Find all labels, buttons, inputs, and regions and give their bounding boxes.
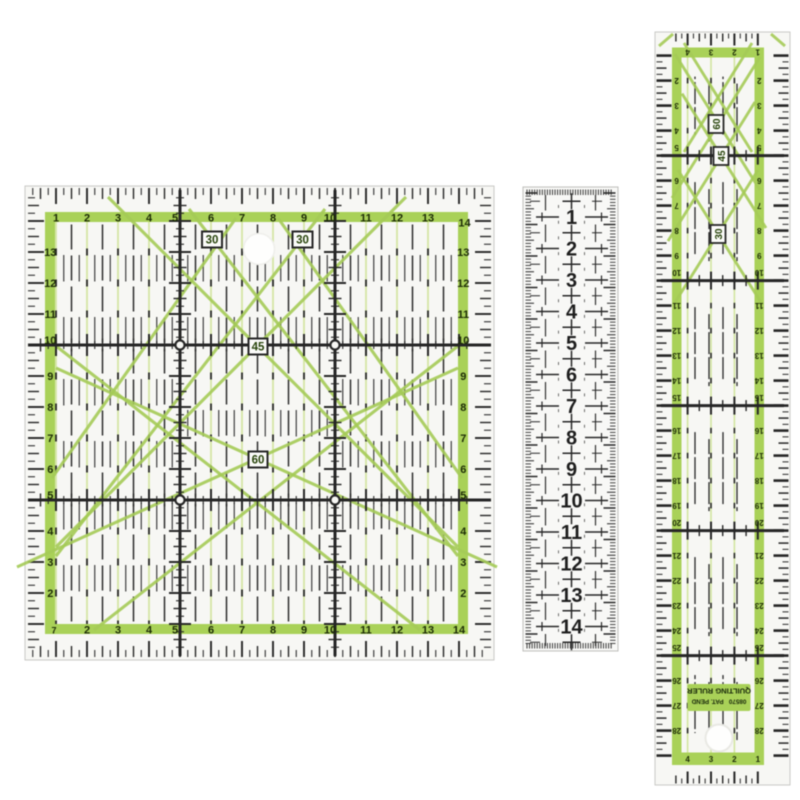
svg-text:60: 60 bbox=[252, 455, 265, 467]
svg-text:10: 10 bbox=[324, 213, 336, 225]
svg-text:12: 12 bbox=[457, 278, 469, 290]
svg-text:22: 22 bbox=[754, 576, 763, 585]
svg-text:19: 19 bbox=[672, 501, 681, 510]
svg-text:12: 12 bbox=[672, 326, 681, 335]
svg-text:21: 21 bbox=[672, 551, 681, 560]
svg-text:2: 2 bbox=[84, 213, 90, 225]
svg-text:1: 1 bbox=[755, 48, 760, 57]
svg-text:10: 10 bbox=[754, 268, 763, 277]
svg-text:6: 6 bbox=[47, 464, 53, 476]
svg-text:13: 13 bbox=[754, 351, 763, 360]
svg-text:9: 9 bbox=[301, 624, 307, 636]
svg-text:3: 3 bbox=[47, 557, 53, 569]
svg-text:11: 11 bbox=[755, 301, 764, 310]
svg-text:19: 19 bbox=[754, 501, 763, 510]
svg-text:4: 4 bbox=[146, 624, 153, 636]
svg-text:5: 5 bbox=[47, 490, 53, 502]
svg-text:10: 10 bbox=[324, 624, 336, 636]
svg-text:28: 28 bbox=[754, 726, 763, 735]
svg-text:12: 12 bbox=[391, 624, 403, 636]
svg-text:6: 6 bbox=[757, 176, 762, 185]
svg-text:13: 13 bbox=[422, 624, 434, 636]
svg-text:10: 10 bbox=[672, 268, 681, 277]
svg-text:1: 1 bbox=[756, 755, 761, 764]
svg-text:2: 2 bbox=[732, 755, 737, 764]
svg-text:22: 22 bbox=[672, 576, 681, 585]
svg-text:18: 18 bbox=[754, 476, 763, 485]
svg-text:9: 9 bbox=[47, 371, 53, 383]
svg-text:3: 3 bbox=[115, 624, 121, 636]
svg-text:27: 27 bbox=[672, 701, 681, 710]
svg-text:5: 5 bbox=[172, 624, 178, 636]
svg-text:3: 3 bbox=[708, 48, 713, 57]
svg-text:9: 9 bbox=[301, 213, 307, 225]
svg-text:23: 23 bbox=[754, 601, 763, 610]
svg-text:11: 11 bbox=[672, 301, 681, 310]
svg-text:15: 15 bbox=[672, 393, 681, 402]
svg-text:3: 3 bbox=[115, 213, 121, 225]
svg-text:20: 20 bbox=[672, 518, 681, 527]
svg-text:6: 6 bbox=[460, 464, 466, 476]
svg-text:45: 45 bbox=[252, 342, 265, 354]
svg-text:20: 20 bbox=[754, 518, 763, 527]
svg-text:2: 2 bbox=[460, 588, 466, 600]
svg-text:16: 16 bbox=[672, 426, 681, 435]
svg-text:12: 12 bbox=[754, 326, 763, 335]
svg-text:4: 4 bbox=[460, 526, 467, 538]
svg-text:14: 14 bbox=[458, 218, 471, 230]
svg-text:3: 3 bbox=[709, 755, 714, 764]
svg-text:27: 27 bbox=[754, 701, 763, 710]
svg-text:9: 9 bbox=[757, 251, 762, 260]
svg-text:25: 25 bbox=[754, 643, 763, 652]
svg-text:10: 10 bbox=[44, 335, 56, 347]
svg-text:3: 3 bbox=[674, 101, 679, 110]
svg-text:16: 16 bbox=[754, 426, 763, 435]
svg-text:4: 4 bbox=[146, 213, 153, 225]
svg-text:12: 12 bbox=[391, 213, 403, 225]
svg-text:7: 7 bbox=[757, 201, 762, 210]
svg-text:5: 5 bbox=[460, 490, 466, 502]
svg-text:8: 8 bbox=[47, 402, 53, 414]
svg-text:5: 5 bbox=[674, 143, 679, 152]
svg-text:14: 14 bbox=[754, 376, 763, 385]
svg-text:17: 17 bbox=[672, 451, 681, 460]
svg-text:8: 8 bbox=[674, 226, 679, 235]
svg-text:11: 11 bbox=[360, 213, 372, 225]
svg-text:2: 2 bbox=[47, 588, 53, 600]
svg-text:7: 7 bbox=[51, 626, 56, 636]
svg-text:7: 7 bbox=[460, 433, 466, 445]
svg-text:28: 28 bbox=[672, 726, 681, 735]
svg-text:12: 12 bbox=[44, 278, 56, 290]
svg-text:08570 PAT. PEND: 08570 PAT. PEND bbox=[691, 698, 746, 705]
svg-text:3: 3 bbox=[757, 101, 762, 110]
svg-text:30: 30 bbox=[206, 235, 219, 247]
svg-text:11: 11 bbox=[44, 309, 56, 321]
svg-text:9: 9 bbox=[460, 371, 466, 383]
svg-text:7: 7 bbox=[239, 213, 245, 225]
svg-text:2: 2 bbox=[732, 48, 737, 57]
svg-text:4: 4 bbox=[685, 48, 690, 57]
svg-text:4: 4 bbox=[47, 526, 54, 538]
svg-text:60: 60 bbox=[712, 118, 723, 130]
svg-text:13: 13 bbox=[457, 247, 469, 259]
svg-text:15: 15 bbox=[754, 393, 763, 402]
svg-text:1: 1 bbox=[53, 213, 59, 225]
svg-text:4: 4 bbox=[674, 126, 679, 135]
svg-text:8: 8 bbox=[270, 213, 276, 225]
svg-text:18: 18 bbox=[672, 476, 681, 485]
svg-text:8: 8 bbox=[757, 226, 762, 235]
svg-text:14: 14 bbox=[453, 624, 466, 636]
svg-text:4: 4 bbox=[757, 126, 762, 135]
svg-text:8: 8 bbox=[460, 402, 466, 414]
svg-text:13: 13 bbox=[422, 213, 434, 225]
svg-text:6: 6 bbox=[208, 624, 214, 636]
svg-text:3: 3 bbox=[460, 557, 466, 569]
svg-text:QUILTING RULER: QUILTING RULER bbox=[686, 687, 750, 696]
svg-text:6: 6 bbox=[674, 176, 679, 185]
svg-text:7: 7 bbox=[47, 433, 53, 445]
svg-text:2: 2 bbox=[674, 76, 679, 85]
svg-text:26: 26 bbox=[672, 676, 681, 685]
svg-text:6: 6 bbox=[208, 213, 214, 225]
svg-text:11: 11 bbox=[360, 624, 372, 636]
svg-text:45: 45 bbox=[717, 150, 728, 162]
svg-text:26: 26 bbox=[754, 676, 763, 685]
svg-text:14: 14 bbox=[672, 376, 681, 385]
svg-text:7: 7 bbox=[674, 201, 679, 210]
svg-text:7: 7 bbox=[239, 624, 245, 636]
svg-text:25: 25 bbox=[672, 643, 681, 652]
svg-text:17: 17 bbox=[754, 451, 763, 460]
svg-text:30: 30 bbox=[296, 235, 309, 247]
svg-text:13: 13 bbox=[672, 351, 681, 360]
svg-text:11: 11 bbox=[457, 309, 469, 321]
svg-text:23: 23 bbox=[672, 601, 681, 610]
svg-text:13: 13 bbox=[44, 247, 56, 259]
svg-text:5: 5 bbox=[757, 143, 762, 152]
svg-text:4: 4 bbox=[685, 755, 690, 764]
svg-text:24: 24 bbox=[672, 626, 681, 635]
svg-text:24: 24 bbox=[754, 626, 763, 635]
svg-text:5: 5 bbox=[172, 213, 178, 225]
svg-text:2: 2 bbox=[757, 76, 762, 85]
svg-text:9: 9 bbox=[674, 251, 679, 260]
svg-text:8: 8 bbox=[270, 624, 276, 636]
svg-text:10: 10 bbox=[457, 335, 469, 347]
svg-text:21: 21 bbox=[754, 551, 763, 560]
svg-text:2: 2 bbox=[84, 624, 90, 636]
svg-text:30: 30 bbox=[714, 228, 725, 240]
